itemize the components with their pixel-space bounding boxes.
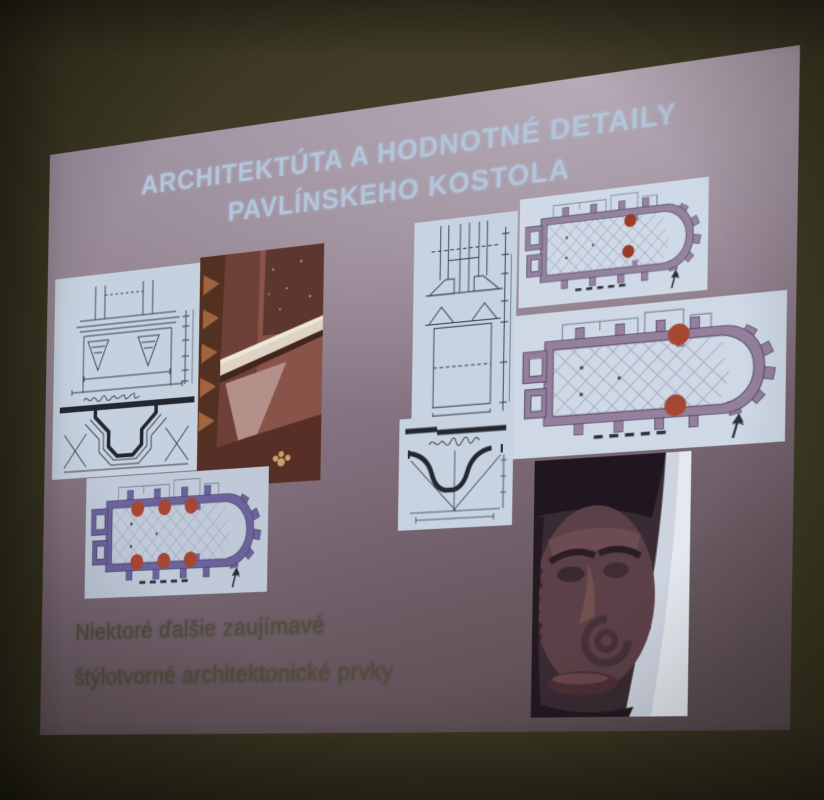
slide-body-line1: Niektoré ďalšie zaujímavé: [75, 598, 395, 655]
floor-plan-graphic: [518, 177, 709, 309]
moulding-profile-graphic: [398, 411, 514, 531]
figure-moulding-profile-drawing: [398, 411, 514, 531]
figure-portal-elevation-drawing: [411, 211, 518, 427]
red-markers: [130, 497, 198, 570]
floor-plan-graphic: [85, 466, 269, 599]
slide-body-text: Niektoré ďalšie zaujímavé štýlotvorné ar…: [74, 598, 394, 699]
figure-capital-elevation-drawing: [52, 262, 204, 480]
capital-elevation-graphic: [52, 262, 204, 480]
mascaron-graphic: [531, 451, 692, 718]
red-markers: [664, 323, 689, 417]
figure-floor-plan-two-markers-large: [513, 290, 787, 459]
projection-photo: ARCHITEKTÚTA A HODNOTNÉ DETAILY PAVLÍNSK…: [0, 0, 824, 800]
pilaster-base-graphic: [197, 243, 325, 488]
floor-plan-graphic: [513, 290, 787, 459]
figure-floor-plan-two-markers-small: [518, 177, 709, 309]
projected-slide: ARCHITEKTÚTA A HODNOTNÉ DETAILY PAVLÍNSK…: [40, 45, 800, 735]
figure-floor-plan-six-markers: [85, 466, 269, 599]
slide-body-line2: štýlotvorné architektonické prvky: [74, 646, 394, 699]
figure-pilaster-base-photo: [197, 243, 325, 488]
portal-elevation-graphic: [411, 211, 518, 427]
figure-mascaron-photo: [531, 451, 692, 718]
